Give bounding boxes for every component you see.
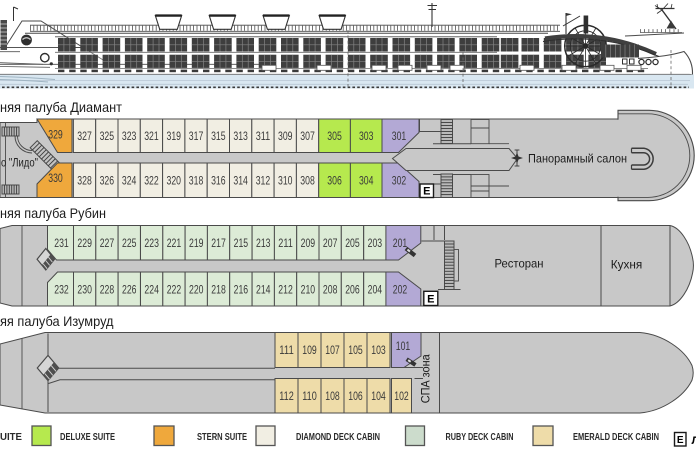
svg-text:225: 225: [122, 236, 137, 250]
svg-text:112: 112: [279, 389, 294, 403]
svg-text:312: 312: [256, 174, 271, 188]
svg-text:227: 227: [100, 236, 115, 250]
svg-text:224: 224: [144, 283, 159, 297]
svg-text:203: 203: [368, 236, 383, 250]
svg-text:E: E: [677, 435, 684, 446]
svg-text:223: 223: [144, 236, 159, 250]
svg-text:317: 317: [189, 129, 204, 143]
svg-text:101: 101: [396, 339, 411, 353]
svg-text:Кухня: Кухня: [611, 257, 643, 271]
svg-text:E: E: [427, 293, 434, 305]
svg-text:309: 309: [278, 129, 293, 143]
svg-text:202: 202: [393, 283, 408, 297]
svg-text:321: 321: [144, 129, 159, 143]
svg-text:229: 229: [77, 236, 92, 250]
svg-text:Панорамный салон: Панорамный салон: [528, 151, 627, 165]
svg-text:няя палуба Рубин: няя палуба Рубин: [0, 206, 106, 221]
svg-text:313: 313: [233, 129, 248, 143]
svg-text:322: 322: [144, 174, 159, 188]
svg-text:328: 328: [77, 174, 92, 188]
svg-text:311: 311: [256, 129, 271, 143]
svg-text:228: 228: [100, 283, 115, 297]
svg-text:216: 216: [234, 283, 249, 297]
svg-text:107: 107: [325, 343, 340, 357]
svg-text:222: 222: [167, 283, 182, 297]
svg-text:219: 219: [189, 236, 204, 250]
svg-text:E: E: [423, 186, 430, 198]
svg-text:301: 301: [392, 129, 407, 143]
svg-text:220: 220: [189, 283, 204, 297]
svg-text:Л: Л: [692, 435, 696, 447]
svg-text:STERN SUITE: STERN SUITE: [197, 431, 247, 443]
svg-text:221: 221: [167, 236, 182, 250]
svg-text:230: 230: [77, 283, 92, 297]
svg-text:209: 209: [301, 236, 316, 250]
svg-text:319: 319: [167, 129, 182, 143]
svg-text:305: 305: [327, 129, 342, 143]
svg-text:211: 211: [278, 236, 293, 250]
svg-text:231: 231: [54, 236, 69, 250]
svg-text:330: 330: [48, 171, 63, 185]
svg-text:303: 303: [359, 129, 374, 143]
svg-text:307: 307: [300, 129, 315, 143]
svg-text:318: 318: [189, 174, 204, 188]
svg-text:302: 302: [392, 174, 407, 188]
svg-text:308: 308: [300, 174, 315, 188]
svg-text:218: 218: [211, 283, 226, 297]
svg-text:304: 304: [359, 174, 374, 188]
svg-text:316: 316: [211, 174, 226, 188]
svg-text:205: 205: [345, 236, 360, 250]
svg-text:315: 315: [211, 129, 226, 143]
svg-text:206: 206: [345, 283, 360, 297]
svg-text:214: 214: [256, 283, 271, 297]
svg-text:314: 314: [233, 174, 248, 188]
svg-text:106: 106: [348, 389, 363, 403]
svg-text:325: 325: [100, 129, 115, 143]
svg-text:104: 104: [371, 389, 386, 403]
svg-text:201: 201: [393, 236, 408, 250]
svg-text:215: 215: [234, 236, 249, 250]
svg-text:329: 329: [48, 128, 63, 142]
svg-text:105: 105: [348, 343, 363, 357]
svg-text:103: 103: [371, 343, 386, 357]
svg-text:232: 232: [54, 283, 69, 297]
svg-text:RUBY DECK CABIN: RUBY DECK CABIN: [446, 431, 514, 443]
svg-text:109: 109: [302, 343, 317, 357]
svg-text:СПА зона: СПА зона: [421, 354, 433, 404]
svg-text:208: 208: [323, 283, 338, 297]
svg-text:UITE: UITE: [0, 431, 22, 443]
svg-text:327: 327: [77, 129, 92, 143]
svg-text:яя палуба Изумруд: яя палуба Изумруд: [0, 314, 114, 329]
svg-text:207: 207: [323, 236, 338, 250]
svg-text:212: 212: [278, 283, 293, 297]
svg-text:о "Лидо": о "Лидо": [1, 158, 38, 170]
svg-text:226: 226: [122, 283, 137, 297]
svg-text:320: 320: [167, 174, 182, 188]
svg-text:111: 111: [279, 343, 294, 357]
svg-text:Ресторан: Ресторан: [495, 257, 544, 271]
svg-text:310: 310: [278, 174, 293, 188]
svg-text:108: 108: [325, 389, 340, 403]
svg-text:няя палуба Диамант: няя палуба Диамант: [0, 100, 122, 115]
svg-text:324: 324: [122, 174, 137, 188]
svg-text:DELUXE SUITE: DELUXE SUITE: [60, 431, 115, 443]
svg-text:306: 306: [327, 174, 342, 188]
svg-text:326: 326: [100, 174, 115, 188]
svg-text:210: 210: [301, 283, 316, 297]
svg-text:EMERALD DECK CABIN: EMERALD DECK CABIN: [573, 431, 659, 443]
svg-text:323: 323: [122, 129, 137, 143]
svg-text:213: 213: [256, 236, 271, 250]
svg-text:DIAMOND DECK CABIN: DIAMOND DECK CABIN: [296, 431, 380, 443]
svg-text:204: 204: [368, 283, 383, 297]
svg-text:110: 110: [302, 389, 317, 403]
svg-text:217: 217: [211, 236, 226, 250]
svg-text:102: 102: [394, 389, 409, 403]
